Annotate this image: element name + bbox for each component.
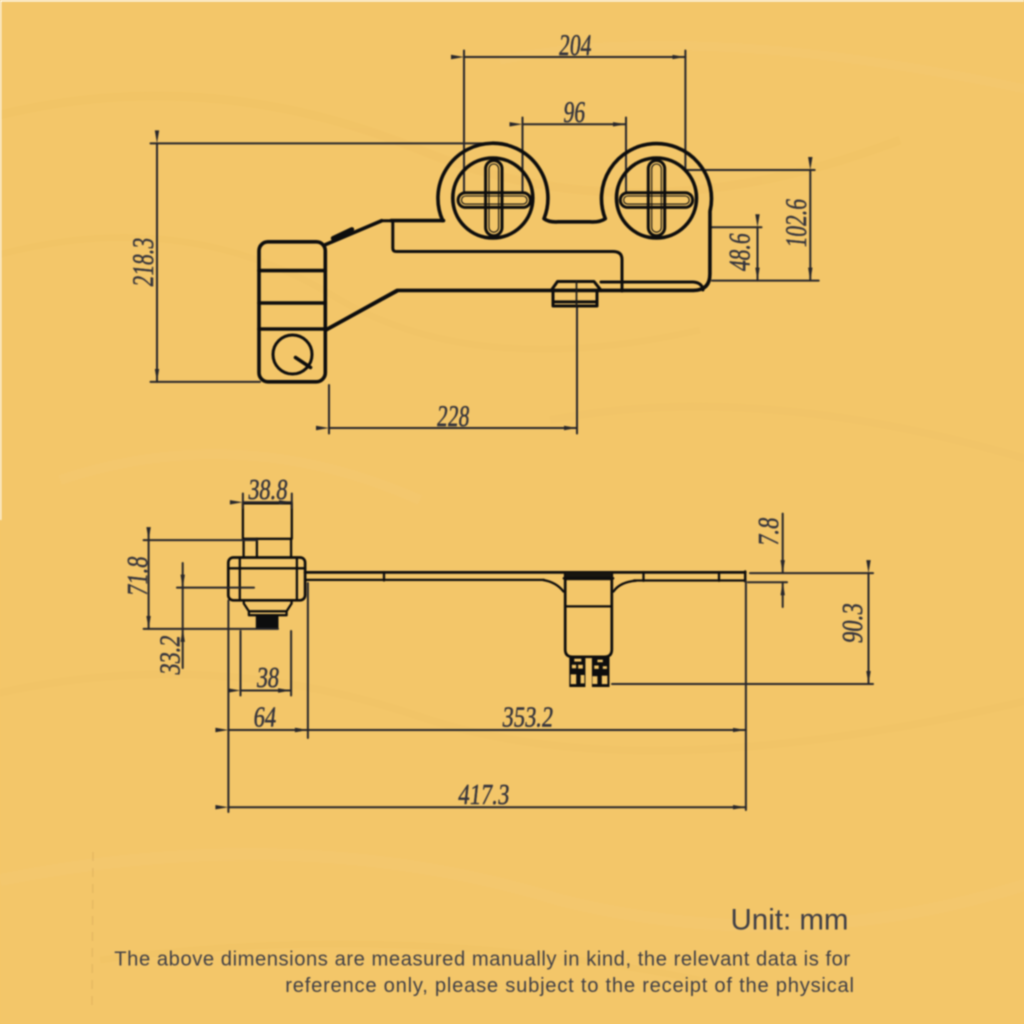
svg-text:Unit: mm: Unit: mm [731, 904, 849, 937]
svg-text:38.8: 38.8 [246, 473, 289, 505]
svg-text:353.2: 353.2 [501, 701, 555, 733]
svg-text:71.8: 71.8 [121, 554, 153, 597]
svg-text:reference only, please subject: reference only, please subject to the re… [285, 975, 854, 997]
svg-text:64: 64 [252, 701, 278, 733]
svg-text:48.6: 48.6 [723, 231, 756, 272]
svg-text:228: 228 [436, 400, 472, 433]
svg-text:The above dimensions are measu: The above dimensions are measured manual… [114, 949, 850, 971]
svg-text:218.3: 218.3 [127, 236, 160, 288]
svg-text:38: 38 [255, 661, 281, 693]
svg-text:417.3: 417.3 [457, 778, 511, 810]
svg-text:33.2: 33.2 [154, 633, 186, 676]
svg-text:90.3: 90.3 [836, 601, 868, 644]
svg-text:204: 204 [558, 29, 594, 62]
svg-text:96: 96 [562, 96, 587, 129]
svg-text:102.6: 102.6 [780, 197, 813, 249]
svg-text:7.8: 7.8 [752, 516, 784, 548]
